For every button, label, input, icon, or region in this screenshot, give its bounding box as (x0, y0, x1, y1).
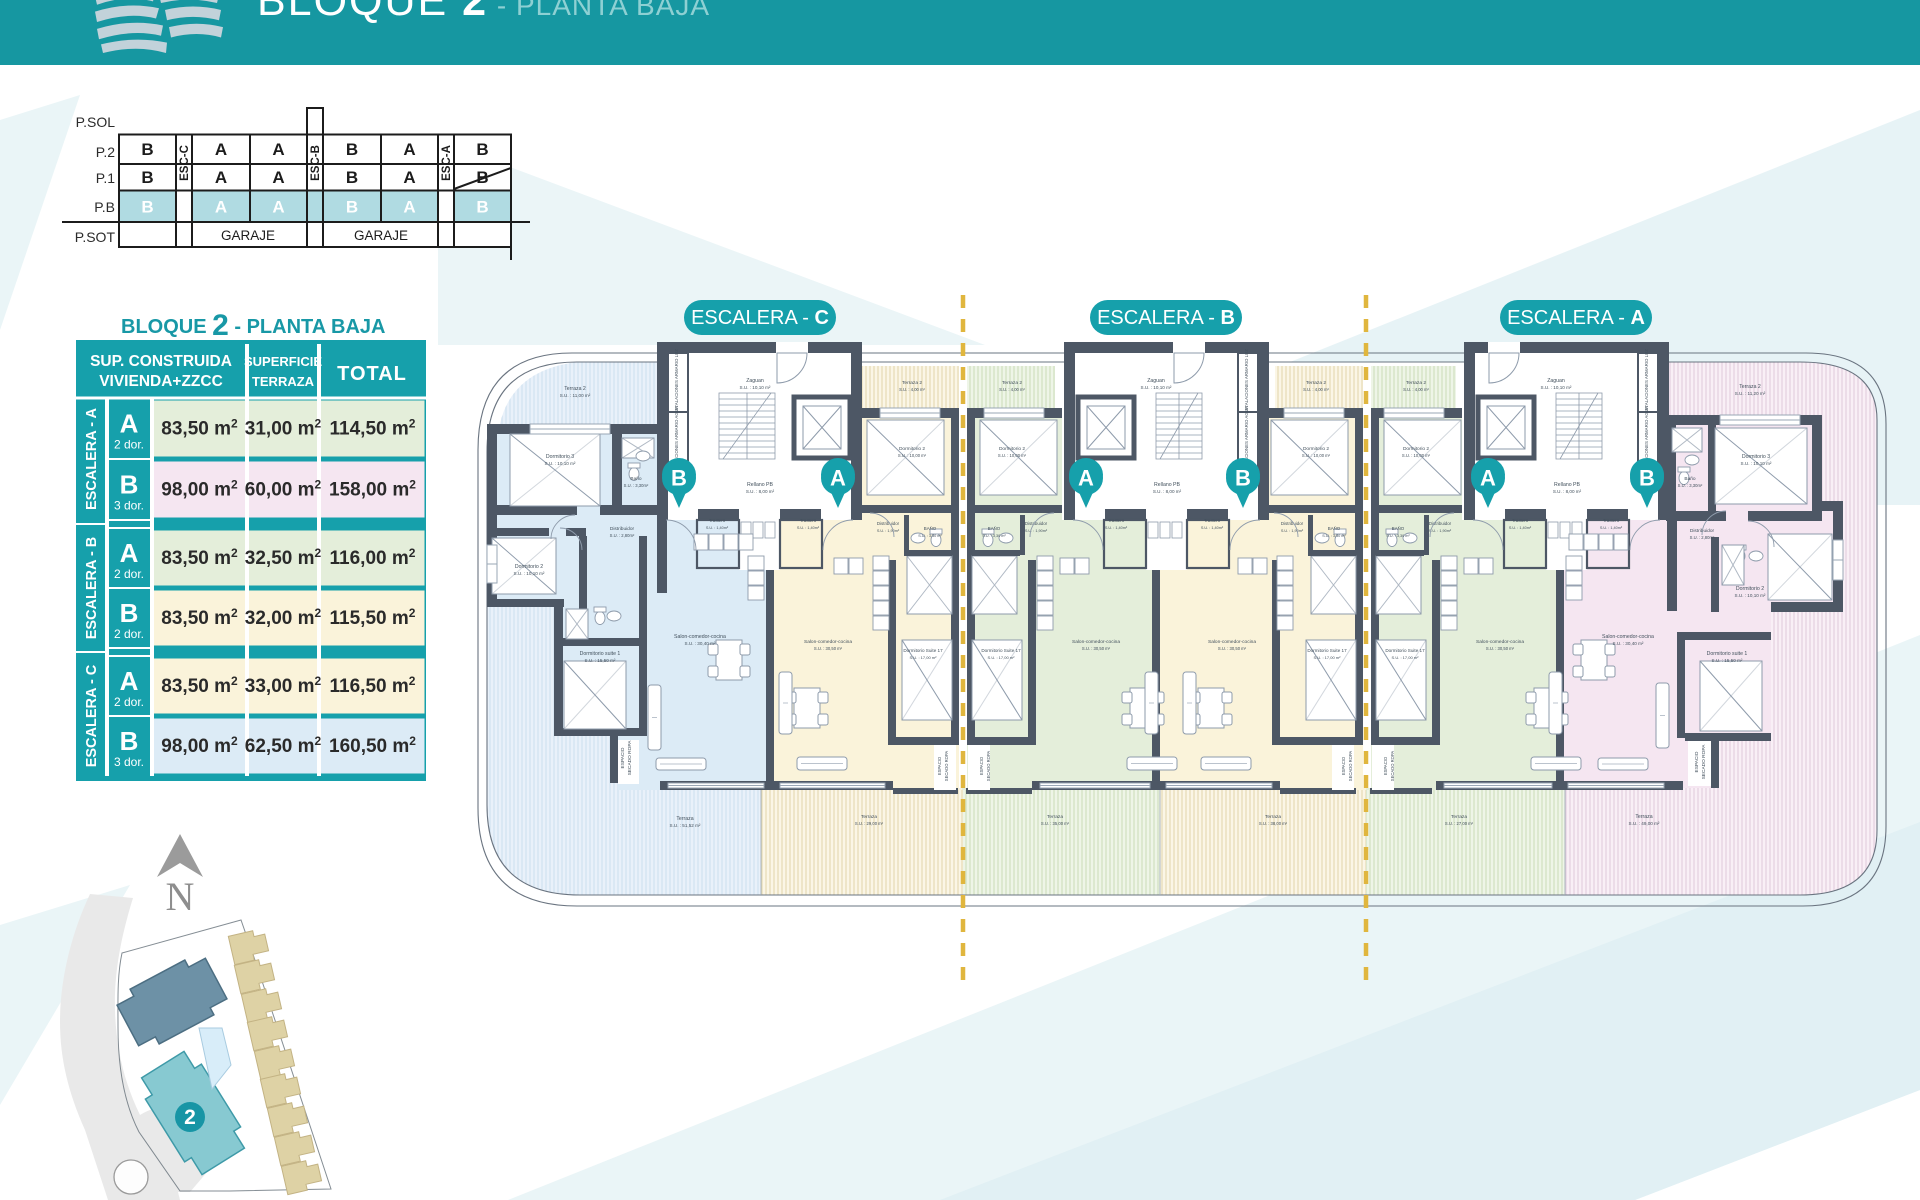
svg-text:S.U. : 3,30m²: S.U. : 3,30m² (624, 483, 649, 488)
svg-text:S.U. : 2,80m²: S.U. : 2,80m² (1690, 535, 1715, 540)
svg-text:Trastero: Trastero (1108, 518, 1125, 523)
svg-text:Dormitorio 2: Dormitorio 2 (899, 446, 925, 452)
svg-text:Salon-comedor-cocina: Salon-comedor-cocina (1476, 639, 1524, 645)
svg-text:Terraza: Terraza (1265, 814, 1281, 820)
svg-text:Dormitorio 2: Dormitorio 2 (1736, 586, 1764, 592)
svg-text:ESPACIO: ESPACIO (937, 756, 942, 775)
svg-text:S.U. : 10,00 m²: S.U. : 10,00 m² (1302, 453, 1331, 458)
svg-text:S.U. : 1,40m²: S.U. : 1,40m² (1509, 526, 1532, 530)
svg-text:ESPACIO: ESPACIO (1341, 756, 1346, 775)
svg-text:Baño: Baño (1684, 476, 1696, 482)
svg-text:SECADO ROPA: SECADO ROPA (1701, 744, 1707, 780)
svg-text:S.U. : 11,00 m²: S.U. : 11,00 m² (560, 393, 591, 398)
svg-text:Dormitorio 3: Dormitorio 3 (546, 454, 574, 460)
svg-text:S.U. : 17,00 m²: S.U. : 17,00 m² (1314, 655, 1342, 660)
svg-text:INSTALACIONES ARMARIO LUZ: INSTALACIONES ARMARIO LUZ (674, 349, 679, 415)
svg-text:S.U. : 4,00 m²: S.U. : 4,00 m² (1303, 387, 1329, 392)
svg-text:S.U. : 10,10 m²: S.U. : 10,10 m² (545, 461, 576, 466)
svg-text:Terraza: Terraza (1047, 814, 1063, 820)
svg-text:S.U. : 1,90m²: S.U. : 1,90m² (1025, 529, 1048, 533)
svg-text:Dormitorio Suite 17: Dormitorio Suite 17 (1307, 648, 1347, 653)
svg-text:S.U. : 27,00 m²: S.U. : 27,00 m² (1445, 821, 1474, 826)
svg-text:S.U. : 17,00 m²: S.U. : 17,00 m² (1392, 655, 1420, 660)
svg-text:Zaguan: Zaguan (1547, 378, 1565, 384)
svg-text:INSTALACIONES ARMARIO LUZ: INSTALACIONES ARMARIO LUZ (1644, 349, 1649, 415)
svg-text:Trastero: Trastero (1204, 518, 1221, 523)
svg-text:ESPACIO: ESPACIO (620, 747, 626, 768)
svg-text:BAÑO: BAÑO (924, 526, 937, 531)
svg-text:Rellano PB: Rellano PB (1154, 482, 1180, 488)
svg-text:S.U. : 11,20 m²: S.U. : 11,20 m² (1735, 391, 1766, 396)
svg-text:Terraza: Terraza (861, 814, 877, 820)
svg-text:Salon-comedor-cocina: Salon-comedor-cocina (674, 634, 726, 640)
svg-text:Salon-comedor-cocina: Salon-comedor-cocina (1602, 634, 1654, 640)
svg-text:S.U. : 30,40 m²: S.U. : 30,40 m² (685, 641, 716, 646)
svg-text:S.U. : 3,30 m²: S.U. : 3,30 m² (918, 534, 942, 538)
svg-text:Dormitorio 2: Dormitorio 2 (1303, 446, 1329, 452)
svg-text:ESPACIO: ESPACIO (979, 756, 984, 775)
svg-text:Trastero: Trastero (709, 518, 726, 523)
svg-text:S.U. : 10,10 m²: S.U. : 10,10 m² (514, 571, 545, 576)
svg-text:S.U. : 10,00 m²: S.U. : 10,00 m² (898, 453, 927, 458)
svg-text:Terraza: Terraza (1451, 814, 1467, 820)
svg-text:S.U. : 10,00 m²: S.U. : 10,00 m² (998, 453, 1027, 458)
svg-text:S.U. : 8,00 m²: S.U. : 8,00 m² (1553, 489, 1582, 494)
svg-text:Dormitorio 2: Dormitorio 2 (999, 446, 1025, 452)
svg-text:ESCALERA - A: ESCALERA - A (1507, 307, 1645, 329)
svg-text:Salon-comedor-cocina: Salon-comedor-cocina (1208, 639, 1256, 645)
svg-text:S.U. : 10,10 m²: S.U. : 10,10 m² (1141, 385, 1172, 390)
svg-text:S.U. : 17,00 m²: S.U. : 17,00 m² (988, 655, 1016, 660)
svg-text:S.U. : 10,10 m²: S.U. : 10,10 m² (1541, 385, 1572, 390)
svg-text:Terraza 2: Terraza 2 (1002, 380, 1022, 386)
svg-text:Baño: Baño (630, 476, 642, 482)
svg-text:A: A (830, 466, 846, 491)
svg-text:Terraza 2: Terraza 2 (902, 380, 922, 386)
svg-text:B: B (671, 466, 687, 491)
svg-text:S.U. : 1,90m²: S.U. : 1,90m² (1281, 529, 1304, 533)
svg-text:S.U. : 30,50 m²: S.U. : 30,50 m² (1218, 646, 1247, 651)
svg-text:S.U. : 3,30 m²: S.U. : 3,30 m² (1322, 534, 1346, 538)
svg-text:S.U. : 10,10 m²: S.U. : 10,10 m² (740, 385, 771, 390)
svg-text:S.U. : 4,00 m²: S.U. : 4,00 m² (999, 387, 1025, 392)
svg-text:S.U. : 29,00 m²: S.U. : 29,00 m² (855, 821, 884, 826)
svg-text:S.U. : 8,00 m²: S.U. : 8,00 m² (746, 489, 775, 494)
svg-text:Dormitorio Suite 17: Dormitorio Suite 17 (1385, 648, 1425, 653)
svg-text:ESCALERA - C: ESCALERA - C (691, 307, 829, 329)
svg-text:A: A (1078, 466, 1094, 491)
svg-text:S.U. : 4,00 m²: S.U. : 4,00 m² (1403, 387, 1429, 392)
svg-text:Distribuidor: Distribuidor (1429, 521, 1452, 526)
svg-text:Dormitorio suite 1: Dormitorio suite 1 (580, 651, 621, 657)
svg-text:S.U. : 49,00 m²: S.U. : 49,00 m² (1629, 821, 1660, 826)
svg-text:S.U. : 8,00 m²: S.U. : 8,00 m² (1153, 489, 1182, 494)
svg-text:Dormitorio 2: Dormitorio 2 (515, 564, 543, 570)
svg-text:SECADO ROPA: SECADO ROPA (1348, 751, 1353, 782)
svg-text:Trastero: Trastero (800, 518, 817, 523)
svg-text:S.U. : 10,10 m²: S.U. : 10,10 m² (1735, 593, 1766, 598)
svg-text:S.U. : 3,30m²: S.U. : 3,30m² (1678, 483, 1703, 488)
svg-text:B: B (1235, 466, 1251, 491)
svg-text:Dormitorio Suite 17: Dormitorio Suite 17 (903, 648, 943, 653)
svg-text:S.U. : 38,00 m²: S.U. : 38,00 m² (1259, 821, 1288, 826)
svg-text:S.U. : 10,00 m²: S.U. : 10,00 m² (1402, 453, 1431, 458)
svg-text:S.U. : 1,90m²: S.U. : 1,90m² (877, 529, 900, 533)
svg-text:Terraza: Terraza (676, 816, 693, 822)
svg-text:S.U. : 10,10 m²: S.U. : 10,10 m² (1741, 461, 1772, 466)
svg-text:S.U. : 30,50 m²: S.U. : 30,50 m² (814, 646, 843, 651)
svg-text:SECADO ROPA: SECADO ROPA (627, 740, 633, 776)
svg-text:S.U. : 1,40m²: S.U. : 1,40m² (706, 526, 729, 530)
svg-text:Trastero: Trastero (1512, 518, 1529, 523)
svg-text:S.U. : 30,50 m²: S.U. : 30,50 m² (1486, 646, 1515, 651)
svg-text:Dormitorio 2: Dormitorio 2 (1403, 446, 1429, 452)
svg-text:Dormitorio 3: Dormitorio 3 (1742, 454, 1770, 460)
svg-text:BAÑO: BAÑO (1392, 526, 1405, 531)
svg-text:S.U. : 1,90m²: S.U. : 1,90m² (1429, 529, 1452, 533)
svg-text:Distribuidor: Distribuidor (610, 526, 635, 532)
svg-text:Terraza 2: Terraza 2 (1406, 380, 1426, 386)
svg-text:S.U. : 4,00 m²: S.U. : 4,00 m² (899, 387, 925, 392)
svg-text:S.U. : 30,40 m²: S.U. : 30,40 m² (1613, 641, 1644, 646)
svg-text:S.U. : 1,40m²: S.U. : 1,40m² (1105, 526, 1128, 530)
svg-text:Zaguan: Zaguan (746, 378, 764, 384)
svg-text:Zaguan: Zaguan (1147, 378, 1165, 384)
svg-text:INSTALACIONES ARMARIO LUZ: INSTALACIONES ARMARIO LUZ (1244, 349, 1249, 415)
svg-text:Terraza 2: Terraza 2 (564, 386, 586, 392)
svg-text:S.U. : 17,00 m²: S.U. : 17,00 m² (910, 655, 938, 660)
svg-text:B: B (1639, 466, 1655, 491)
svg-text:S.U. : 1,40m²: S.U. : 1,40m² (1600, 526, 1623, 530)
svg-text:ESCALERA - B: ESCALERA - B (1097, 307, 1235, 329)
svg-text:Rellano PB: Rellano PB (747, 482, 773, 488)
svg-text:S.U. : 1,40m²: S.U. : 1,40m² (797, 526, 820, 530)
svg-text:Salon-comedor-cocina: Salon-comedor-cocina (1072, 639, 1120, 645)
svg-text:Dormitorio suite 1: Dormitorio suite 1 (1707, 651, 1748, 657)
svg-text:ESPACIO: ESPACIO (1383, 756, 1388, 775)
svg-text:Terraza: Terraza (1635, 814, 1652, 820)
svg-text:S.U. : 35,00 m²: S.U. : 35,00 m² (1041, 821, 1070, 826)
svg-text:S.U. : 3,30 m²: S.U. : 3,30 m² (1386, 534, 1410, 538)
svg-text:Dormitorio Suite 17: Dormitorio Suite 17 (981, 648, 1021, 653)
svg-text:S.U. : 51,52 m²: S.U. : 51,52 m² (670, 823, 701, 828)
svg-text:SECADO ROPA: SECADO ROPA (986, 751, 991, 782)
svg-text:Rellano PB: Rellano PB (1554, 482, 1580, 488)
svg-text:S.U. : 3,30 m²: S.U. : 3,30 m² (982, 534, 1006, 538)
svg-text:BAÑO: BAÑO (988, 526, 1001, 531)
svg-text:Salon-comedor-cocina: Salon-comedor-cocina (804, 639, 852, 645)
svg-text:ESPACIO: ESPACIO (1694, 751, 1700, 772)
svg-text:S.U. : 30,50 m²: S.U. : 30,50 m² (1082, 646, 1111, 651)
svg-text:Terraza 2: Terraza 2 (1739, 384, 1761, 390)
svg-text:S.U. : 15,50 m²: S.U. : 15,50 m² (585, 658, 616, 663)
svg-text:A: A (1480, 466, 1496, 491)
svg-text:BAÑO: BAÑO (1328, 526, 1341, 531)
svg-text:Terraza 2: Terraza 2 (1306, 380, 1326, 386)
svg-text:S.U. : 15,50 m²: S.U. : 15,50 m² (1712, 658, 1743, 663)
svg-text:SECADO ROPA: SECADO ROPA (1390, 751, 1395, 782)
svg-text:S.U. : 2,80m²: S.U. : 2,80m² (610, 533, 635, 538)
svg-text:S.U. : 1,40m²: S.U. : 1,40m² (1201, 526, 1224, 530)
svg-text:SECADO ROPA: SECADO ROPA (944, 751, 949, 782)
svg-text:Distribuidor: Distribuidor (1025, 521, 1048, 526)
svg-text:Trastero: Trastero (1603, 518, 1620, 523)
